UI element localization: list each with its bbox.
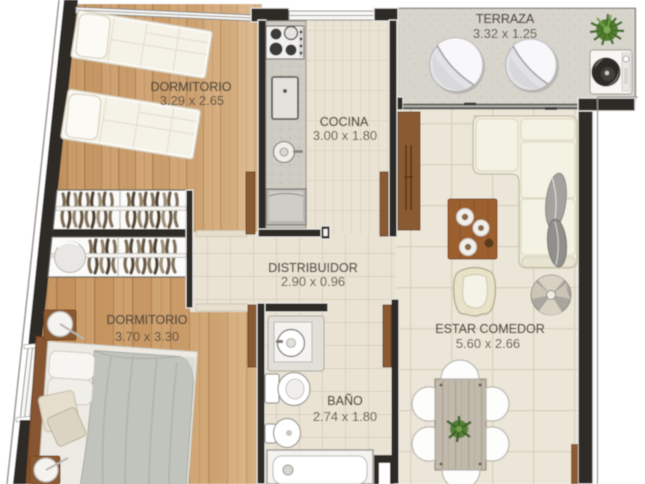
svg-text:3.70 x 3.30: 3.70 x 3.30 <box>115 329 179 344</box>
svg-text:DORMITORIO: DORMITORIO <box>150 80 231 94</box>
svg-text:2.90 x 0.96: 2.90 x 0.96 <box>281 274 345 289</box>
svg-text:3.32 x 1.25: 3.32 x 1.25 <box>473 26 537 41</box>
svg-text:DORMITORIO: DORMITORIO <box>106 313 187 327</box>
svg-text:DISTRIBUIDOR: DISTRIBUIDOR <box>268 261 358 275</box>
svg-text:TERRAZA: TERRAZA <box>476 12 535 26</box>
svg-text:2.74 x 1.80: 2.74 x 1.80 <box>313 409 377 424</box>
svg-text:3.00 x 1.80: 3.00 x 1.80 <box>313 128 377 143</box>
svg-text:ESTAR COMEDOR: ESTAR COMEDOR <box>435 322 545 336</box>
svg-text:5.60 x 2.66: 5.60 x 2.66 <box>456 336 520 351</box>
svg-text:3.29 x 2.65: 3.29 x 2.65 <box>160 93 224 108</box>
svg-text:COCINA: COCINA <box>320 115 369 129</box>
svg-text:BAÑO: BAÑO <box>327 394 363 408</box>
